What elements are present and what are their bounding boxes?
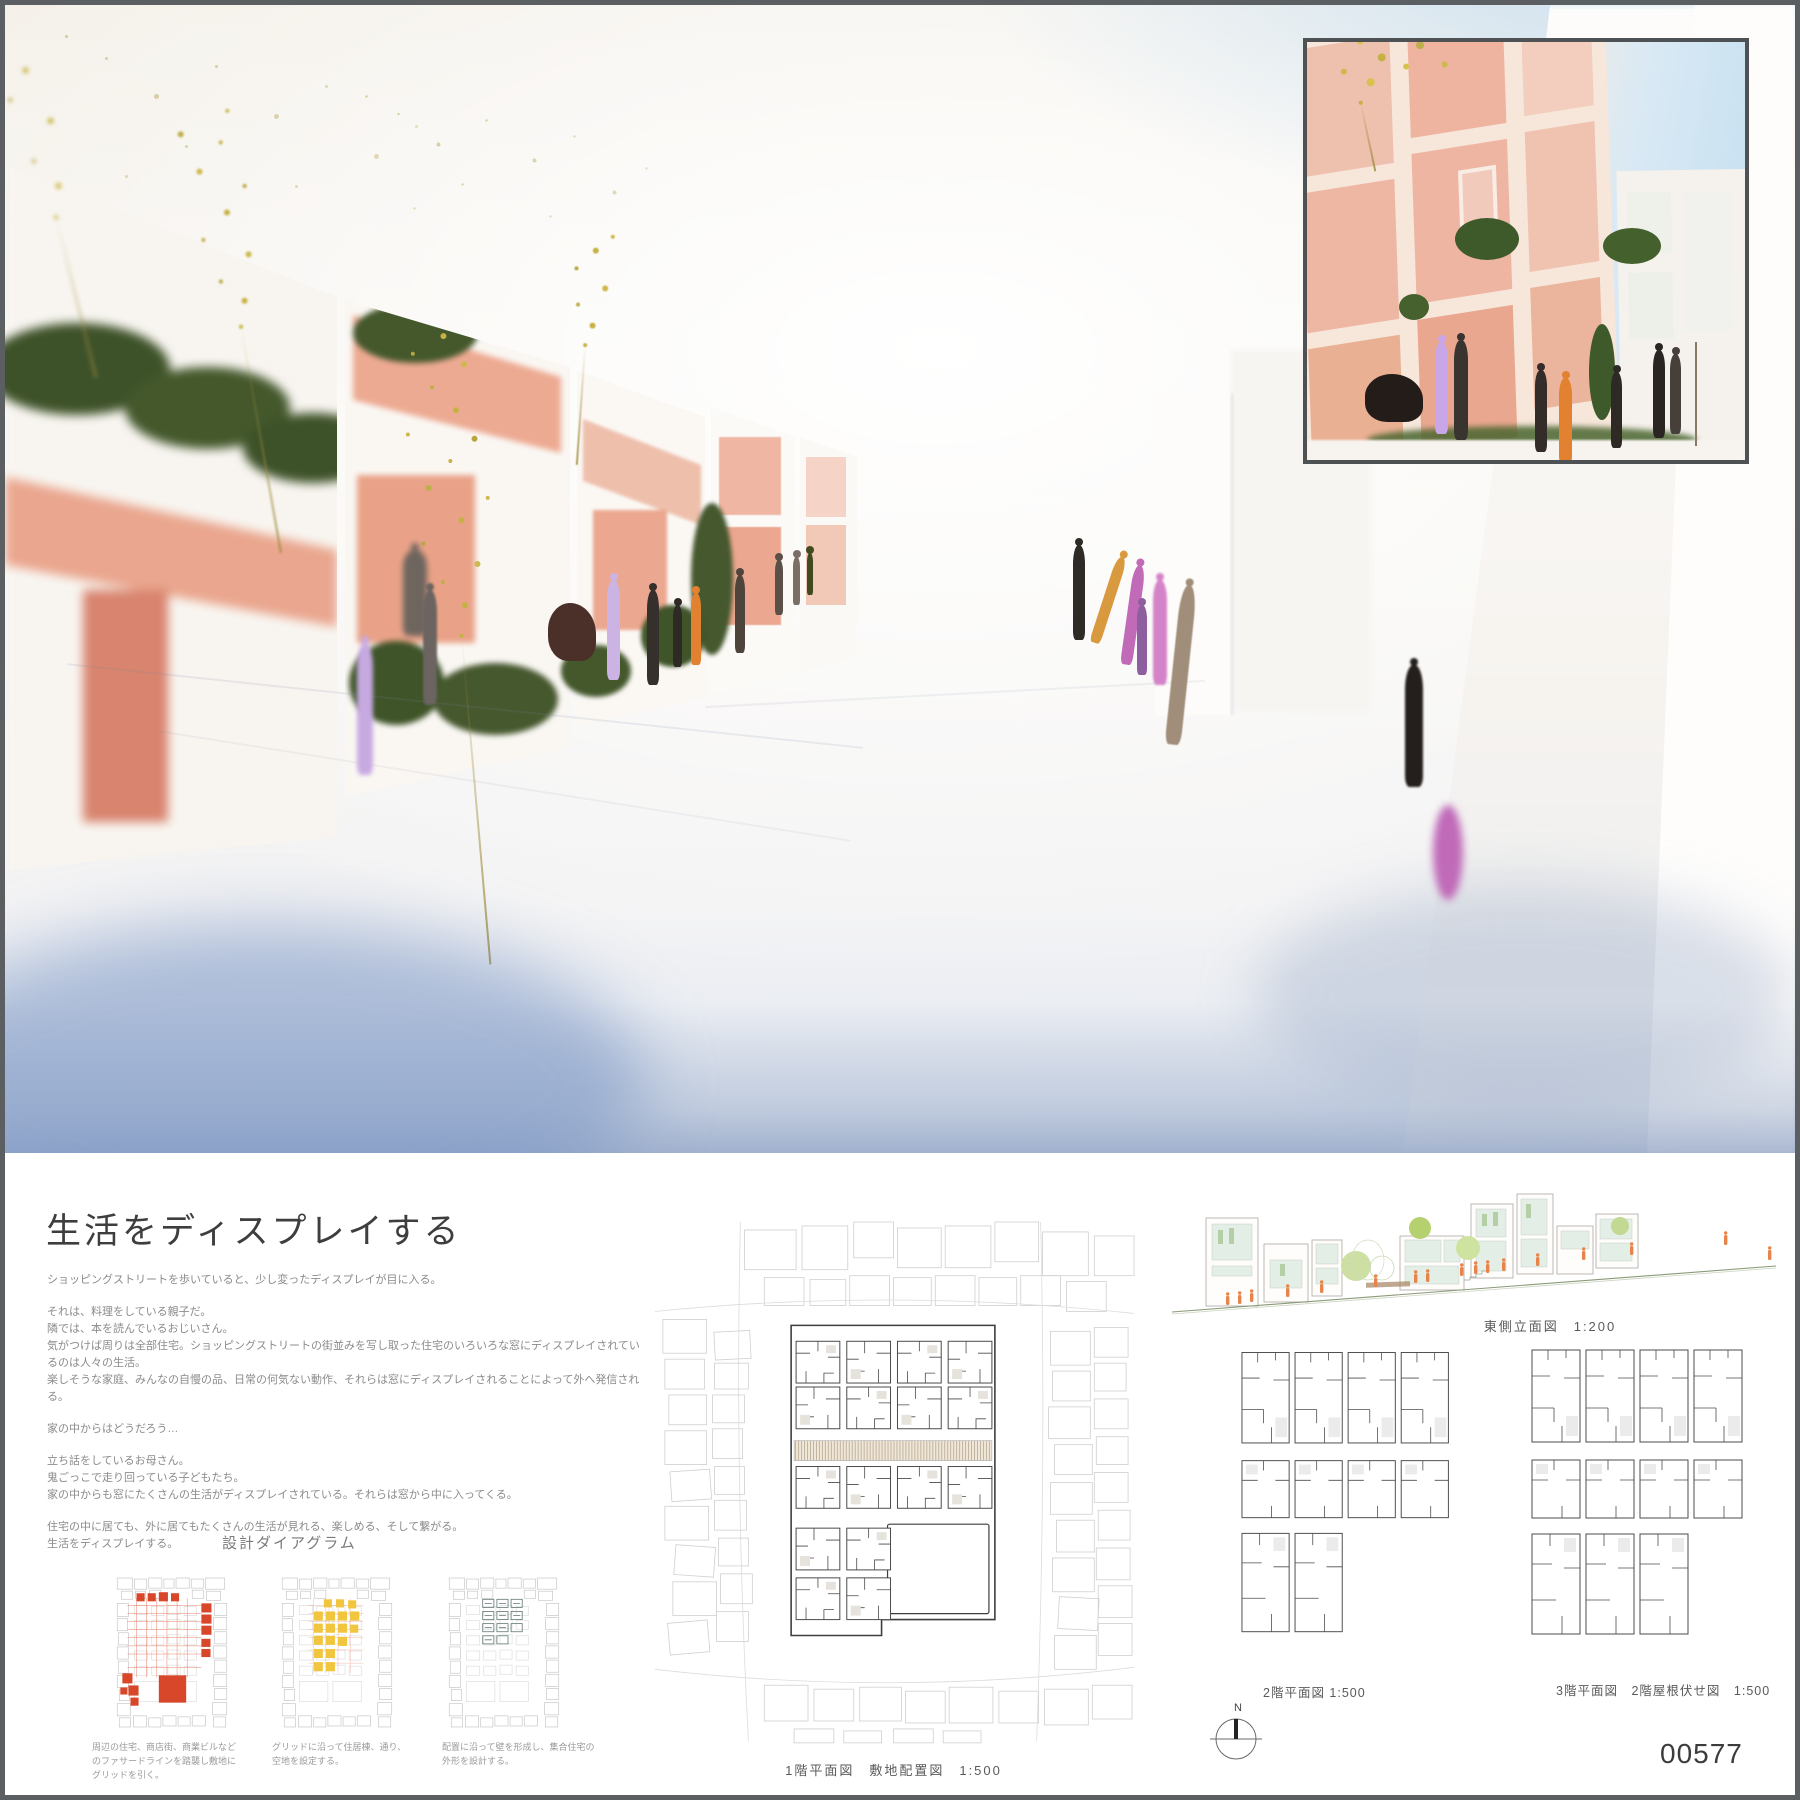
figure-silhouette bbox=[807, 553, 813, 595]
intro-text: ショッピングストリートを歩いていると、少し変ったディスプレイが目に入る。 それは… bbox=[47, 1272, 647, 1568]
figure-silhouette bbox=[793, 557, 800, 605]
window bbox=[1628, 272, 1673, 339]
inset-ground bbox=[1307, 440, 1745, 462]
figure-silhouette bbox=[1559, 378, 1572, 464]
figure-bird-silhouette bbox=[1365, 374, 1423, 422]
elevation-drawing bbox=[1168, 1168, 1780, 1316]
figure-silhouette bbox=[1670, 354, 1681, 434]
figure-silhouette bbox=[1137, 605, 1147, 675]
diagram-grid-red bbox=[115, 1576, 230, 1729]
stick-figure bbox=[1695, 342, 1697, 446]
figure-silhouette bbox=[1611, 372, 1622, 448]
floor-plans-2f bbox=[1240, 1348, 1472, 1648]
intro-line: 立ち話をしているお母さん。 bbox=[47, 1453, 647, 1470]
pink-panel bbox=[1407, 38, 1506, 138]
figure-silhouette bbox=[1535, 370, 1547, 452]
diagram-caption: 周辺の住宅、商店街、商業ビルなどのファサードラインを踏襲し敷地にグリッドを引く。 bbox=[92, 1740, 242, 1782]
intro-line: 家の中からはどうだろう… bbox=[47, 1421, 647, 1438]
intro-line: ショッピングストリートを歩いていると、少し変ったディスプレイが目に入る。 bbox=[47, 1272, 647, 1289]
figure-silhouette bbox=[775, 560, 783, 615]
figure-bird-silhouette bbox=[548, 603, 596, 661]
pink-panel bbox=[1525, 121, 1600, 272]
figure-silhouette bbox=[1435, 342, 1448, 434]
site-plan-label: 1階平面図 敷地配置図 1:500 bbox=[645, 1760, 1142, 1779]
photo-corner-shadow bbox=[5, 923, 645, 1153]
diagram-grid-yellow bbox=[280, 1576, 395, 1729]
roof-hedge bbox=[353, 303, 478, 363]
figure-silhouette bbox=[1089, 556, 1127, 645]
figure-silhouette bbox=[1405, 665, 1423, 787]
pink-panel bbox=[1303, 179, 1399, 333]
figure-silhouette bbox=[1073, 545, 1085, 640]
intro-line: 隣では、本を読んでいるおじいさん。 bbox=[47, 1321, 647, 1338]
diagram-building-outline bbox=[447, 1576, 562, 1729]
intro-line: 鬼ごっこで走り回っている子どもたち。 bbox=[47, 1470, 647, 1487]
diagram-caption: 配置に沿って壁を形成し、集合住宅の外形を設計する。 bbox=[442, 1740, 600, 1768]
pink-door bbox=[83, 590, 168, 822]
plan-3f-label: 3階平面図 2階屋根伏せ図 1:500 bbox=[1556, 1680, 1770, 1699]
diagram-heading: 設計ダイアグラム bbox=[222, 1532, 357, 1553]
intro-line: 楽しそうな家庭、みんなの自慢の品、日常の何気ない動作、それらは窓にディスプレイさ… bbox=[47, 1372, 647, 1406]
figure-silhouette bbox=[673, 605, 682, 667]
pink-panel bbox=[806, 457, 846, 517]
model-photo-inset bbox=[1303, 38, 1749, 464]
window-box-green bbox=[1455, 218, 1519, 260]
figure-silhouette bbox=[357, 643, 373, 775]
panel-number: 00577 bbox=[1660, 1738, 1743, 1770]
pink-panel bbox=[1521, 38, 1594, 116]
figure-silhouette bbox=[691, 593, 701, 665]
bush-green bbox=[1399, 294, 1429, 320]
window-box-green bbox=[1603, 228, 1661, 264]
pink-panel bbox=[1303, 38, 1394, 177]
figure-silhouette bbox=[735, 575, 745, 653]
intro-line: 気がつけば周りは全部住宅。ショッピングストリートの街並みを写し取った住宅のいろい… bbox=[47, 1338, 647, 1372]
window bbox=[1683, 191, 1733, 332]
ground-seam bbox=[705, 680, 1204, 708]
plan-2f-label: 2階平面図 1:500 bbox=[1263, 1682, 1366, 1701]
figure-silhouette bbox=[1653, 350, 1665, 438]
north-arrow: N bbox=[1208, 1702, 1268, 1768]
intro-line: それは、料理をしている親子だ。 bbox=[47, 1304, 647, 1321]
inset-right-building bbox=[1616, 169, 1749, 464]
presentation-board: 生活をディスプレイする ショッピングストリートを歩いていると、少し変ったディスプ… bbox=[0, 0, 1800, 1800]
flower-speckles bbox=[65, 35, 68, 38]
diagram-caption: グリッドに沿って住居棟、通り、空地を設定する。 bbox=[272, 1740, 407, 1768]
figure-silhouette bbox=[1153, 580, 1167, 685]
page-title: 生活をディスプレイする bbox=[46, 1203, 462, 1254]
figure-blur-magenta bbox=[1433, 805, 1463, 900]
elevation-label: 東側立面図 1:200 bbox=[1440, 1316, 1660, 1335]
site-plan-drawing bbox=[645, 1192, 1142, 1749]
flower-speckles bbox=[365, 95, 367, 97]
pink-panel bbox=[719, 437, 781, 515]
figure-silhouette bbox=[647, 590, 659, 685]
intro-line: 家の中からも窓にたくさんの生活がディスプレイされている。それらは窓から中に入って… bbox=[47, 1487, 647, 1504]
figure-silhouette bbox=[607, 580, 620, 680]
base-bush bbox=[433, 663, 558, 735]
figure-silhouette bbox=[1454, 340, 1468, 440]
north-label: N bbox=[1208, 1702, 1268, 1714]
floor-plans-3f bbox=[1526, 1348, 1770, 1648]
figure-silhouette bbox=[423, 590, 437, 705]
